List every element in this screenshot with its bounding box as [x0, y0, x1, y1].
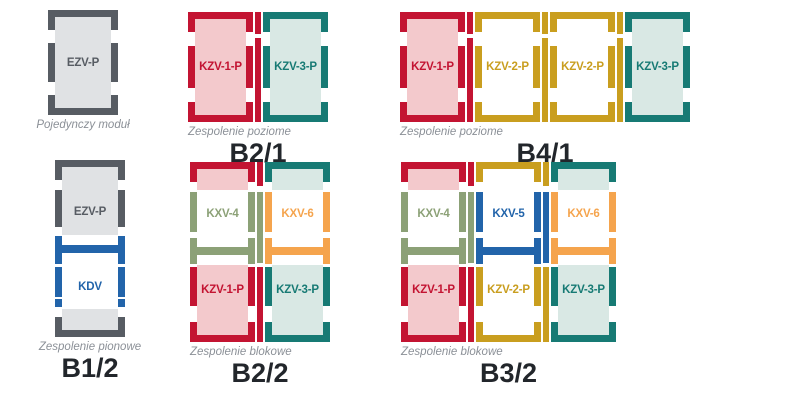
- top-element-fill: [558, 169, 609, 190]
- flashing-combinations-diagram: EZV-P Pojedynczy moduł KZV-1-P: [0, 0, 800, 400]
- frame-corner: [401, 169, 408, 182]
- top-element-fill: [483, 169, 534, 190]
- module-label: KXV-4: [190, 190, 255, 237]
- top-element: [476, 162, 541, 190]
- module-label: KZV-3-P: [551, 265, 616, 314]
- module-label: EZV-P: [55, 188, 125, 235]
- group-b3-2: KXV-4 KZV-1-P: [401, 162, 616, 387]
- connector-bottom-piece: [468, 267, 474, 342]
- group-name: B3/2: [480, 360, 537, 387]
- module-label: KXV-5: [476, 190, 541, 237]
- connector-strip: [615, 12, 625, 122]
- module-kzv-3-p: KZV-3-P: [263, 12, 328, 122]
- top-element-fill: [408, 169, 459, 190]
- group-b2-2: KXV-4 KZV-1-P: [190, 162, 330, 387]
- frame-corner: [401, 322, 408, 335]
- frame-top-bar: [551, 162, 616, 169]
- module-label: KZV-3-P: [625, 12, 690, 122]
- frame-bottom-bar: [55, 330, 125, 337]
- junction: [476, 237, 541, 265]
- module-label: KZV-3-P: [265, 265, 330, 314]
- junction-crossbar: [196, 247, 249, 255]
- group-b4-1: KZV-1-P KZV-2-P: [400, 12, 690, 167]
- frame-bottom-bar: [551, 335, 616, 342]
- junction: [265, 237, 330, 265]
- connector-strip: [540, 12, 550, 122]
- frame-corner: [551, 169, 558, 182]
- connector-main-piece: [467, 38, 473, 122]
- module-label: KDV: [55, 265, 125, 309]
- frame-corner: [55, 317, 62, 330]
- column: EZV-P KDV: [55, 160, 125, 337]
- bottom-element-fill: [272, 314, 323, 335]
- module-label: KXV-6: [265, 190, 330, 237]
- junction-side-bar: [323, 238, 330, 264]
- module-label: KZV-1-P: [190, 265, 255, 314]
- bottom-element-fill: [197, 314, 248, 335]
- connector-bottom-piece: [543, 267, 549, 342]
- module-label: KZV-3-P: [263, 12, 328, 122]
- connector-mid-piece: [257, 192, 263, 263]
- frame-corner: [476, 322, 483, 335]
- module-ezv-p: EZV-P: [48, 10, 118, 115]
- module-label: EZV-P: [48, 10, 118, 115]
- junction: [401, 237, 466, 265]
- module-kxv-6: KXV-6: [265, 190, 330, 237]
- connector-top-piece: [542, 12, 548, 34]
- module-label: KXV-6: [551, 190, 616, 237]
- group-caption: Zespolenie pionowe: [39, 341, 141, 353]
- module-label: KZV-1-P: [401, 265, 466, 314]
- top-element: [551, 162, 616, 190]
- module-kxv-4: KXV-4: [190, 190, 255, 237]
- top-element: [55, 160, 125, 188]
- group-b2-1: KZV-1-P KZV-3-P Zespolenie poziome B2/1: [188, 12, 328, 167]
- frame-corner: [118, 317, 125, 330]
- connector-top-piece: [467, 12, 473, 34]
- top-element-fill: [272, 169, 323, 190]
- module-label: KZV-2-P: [550, 12, 615, 122]
- top-element: [265, 162, 330, 190]
- connector-top-piece: [468, 162, 474, 186]
- frame-corner: [323, 169, 330, 182]
- frame-bottom-bar: [265, 335, 330, 342]
- group-caption: Zespolenie poziome: [400, 126, 690, 138]
- module-kzv-1-p: KZV-1-P: [400, 12, 465, 122]
- junction-side-bar: [609, 238, 616, 264]
- module-row: EZV-P: [48, 10, 118, 115]
- junction-side-bar: [248, 238, 255, 264]
- frame-top-bar: [401, 162, 466, 169]
- top-element: [190, 162, 255, 190]
- module-kzv-1-p: KZV-1-P: [188, 12, 253, 122]
- frame-corner: [190, 169, 197, 182]
- module-kzv-2-p: KZV-2-P: [476, 265, 541, 314]
- frame-corner: [609, 322, 616, 335]
- module-ezv-p: EZV-P: [55, 188, 125, 235]
- connector-top-piece: [255, 12, 261, 34]
- bottom-element-fill: [408, 314, 459, 335]
- bottom-element: [476, 314, 541, 342]
- module-kdv: KDV: [55, 265, 125, 309]
- module-label: KXV-4: [401, 190, 466, 237]
- bottom-element: [551, 314, 616, 342]
- column-1: KXV-4 KZV-1-P: [401, 162, 466, 342]
- connector-strip: [255, 162, 265, 342]
- group-caption: Zespolenie blokowe: [190, 346, 330, 358]
- junction-crossbar: [407, 247, 460, 255]
- connector-strip: [541, 162, 551, 342]
- module-kzv-3-p: KZV-3-P: [265, 265, 330, 314]
- frame-corner: [459, 169, 466, 182]
- frame-corner: [248, 322, 255, 335]
- junction-side-bar: [459, 238, 466, 264]
- bottom-element-fill: [62, 309, 118, 330]
- bottom-element: [55, 309, 125, 337]
- frame-bottom-bar: [190, 335, 255, 342]
- connector-top-piece: [617, 12, 623, 34]
- junction-kdv: [55, 235, 125, 265]
- module-label: KZV-1-P: [188, 12, 253, 122]
- module-label: KZV-2-P: [476, 265, 541, 314]
- module-kxv-5: KXV-5: [476, 190, 541, 237]
- frame-corner: [323, 322, 330, 335]
- module-row: KZV-1-P KZV-3-P: [188, 12, 328, 122]
- module-label: KZV-2-P: [475, 12, 540, 122]
- module-kzv-3-p: KZV-3-P: [625, 12, 690, 122]
- junction: [190, 237, 255, 265]
- module-kzv-1-p: KZV-1-P: [190, 265, 255, 314]
- frame-corner: [55, 167, 62, 180]
- connector-strip: [466, 162, 476, 342]
- frame-top-bar: [55, 160, 125, 167]
- junction-crossbar: [482, 247, 535, 255]
- junction-side-bar: [534, 238, 541, 264]
- group-name: B1/2: [61, 355, 118, 382]
- top-element-fill: [62, 167, 118, 188]
- frame-corner: [551, 322, 558, 335]
- module-kzv-2-p: KZV-2-P: [550, 12, 615, 122]
- group-b1-2: EZV-P KDV Zespolenie pionowe B1: [55, 160, 125, 382]
- column-2: KXV-5 KZV-2-P: [476, 162, 541, 342]
- frame-corner: [190, 322, 197, 335]
- connector-main-piece: [542, 38, 548, 122]
- group-name: B2/2: [231, 360, 288, 387]
- module-kzv-1-p: KZV-1-P: [401, 265, 466, 314]
- connector-main-piece: [617, 38, 623, 122]
- module-kxv-4: KXV-4: [401, 190, 466, 237]
- group-single-module: EZV-P Pojedynczy moduł: [48, 10, 118, 131]
- connector-strip: [465, 12, 475, 122]
- frame-corner: [118, 167, 125, 180]
- connector-main-piece: [255, 38, 261, 122]
- frame-top-bar: [190, 162, 255, 169]
- frame-corner: [265, 322, 272, 335]
- bottom-element: [265, 314, 330, 342]
- module-label: KZV-1-P: [400, 12, 465, 122]
- bottom-element: [401, 314, 466, 342]
- connector-top-piece: [543, 162, 549, 186]
- module-kzv-3-p: KZV-3-P: [551, 265, 616, 314]
- frame-corner: [248, 169, 255, 182]
- block-row: KXV-4 KZV-1-P: [190, 162, 330, 342]
- frame-corner: [476, 169, 483, 182]
- frame-corner: [609, 169, 616, 182]
- bottom-element-fill: [558, 314, 609, 335]
- junction-crossbar: [271, 247, 324, 255]
- group-caption: Zespolenie blokowe: [401, 346, 616, 358]
- top-element: [401, 162, 466, 190]
- module-kxv-6: KXV-6: [551, 190, 616, 237]
- connector-top-piece: [257, 162, 263, 186]
- connector-mid-piece: [468, 192, 474, 263]
- frame-bottom-bar: [476, 335, 541, 342]
- frame-top-bar: [265, 162, 330, 169]
- frame-corner: [459, 322, 466, 335]
- frame-corner: [534, 322, 541, 335]
- group-caption: Zespolenie poziome: [188, 126, 328, 138]
- bottom-element: [190, 314, 255, 342]
- frame-bottom-bar: [401, 335, 466, 342]
- junction-crossbar: [61, 245, 119, 253]
- junction-crossbar: [557, 247, 610, 255]
- frame-corner: [534, 169, 541, 182]
- connector-bottom-piece: [257, 267, 263, 342]
- frame-top-bar: [476, 162, 541, 169]
- connector-mid-piece: [543, 192, 549, 263]
- module-row: KZV-1-P KZV-2-P: [400, 12, 690, 122]
- junction-side-bar: [118, 236, 125, 264]
- group-caption: Pojedynczy moduł: [36, 119, 129, 131]
- column-2: KXV-6 KZV-3-P: [265, 162, 330, 342]
- top-element-fill: [197, 169, 248, 190]
- junction: [551, 237, 616, 265]
- frame-corner: [265, 169, 272, 182]
- connector-strip: [253, 12, 263, 122]
- column-1: KXV-4 KZV-1-P: [190, 162, 255, 342]
- bottom-element-fill: [483, 314, 534, 335]
- block-row: KXV-4 KZV-1-P: [401, 162, 616, 342]
- column-3: KXV-6 KZV-3-P: [551, 162, 616, 342]
- module-kzv-2-p: KZV-2-P: [475, 12, 540, 122]
